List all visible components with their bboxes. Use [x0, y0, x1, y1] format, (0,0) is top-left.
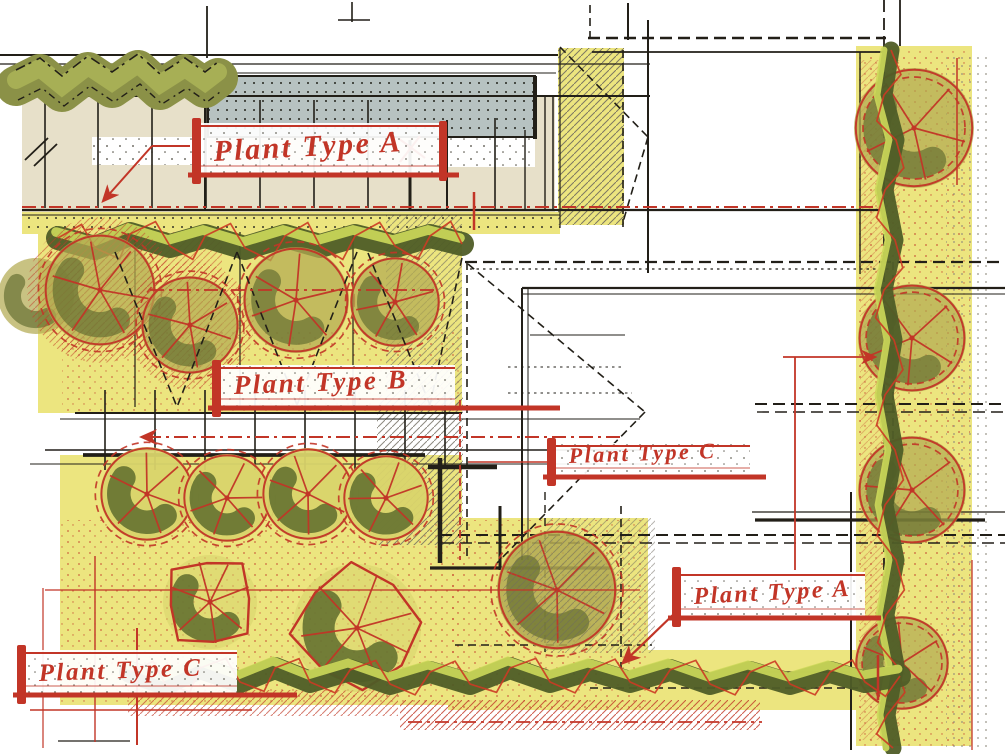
plant-type-label: Plant Type A — [668, 567, 881, 627]
tree-center-dot — [187, 322, 192, 327]
planting-plan-sketch-canvas: Plant Type APlant Type BPlant Type CPlan… — [0, 0, 1005, 754]
tree-center-dot — [144, 491, 149, 496]
tree-center-dot — [97, 287, 102, 292]
tree-symbol-outline — [163, 555, 257, 649]
plant-type-label: Plant Type A — [188, 118, 459, 184]
dotted-strip-texture — [92, 137, 208, 165]
label-left-bar — [212, 360, 221, 417]
tree-spoke — [227, 497, 266, 498]
label-right-bar — [439, 121, 447, 181]
hatch-patch — [558, 48, 624, 225]
tree-center-dot — [207, 599, 212, 604]
plant-type-label: Plant Type C — [543, 438, 766, 486]
sketch-page: Plant Type APlant Type BPlant Type CPlan… — [0, 0, 1005, 754]
plant-type-label: Plant Type B — [208, 360, 560, 417]
hatch-patch — [400, 700, 760, 730]
tree-spoke — [348, 498, 386, 499]
tree-symbol-band — [858, 284, 966, 392]
tree-center-dot — [354, 625, 359, 630]
plant-type-label-text: Plant Type C — [567, 438, 717, 468]
label-left-bar — [17, 645, 26, 704]
tree-spoke — [308, 494, 309, 534]
tree-center-dot — [911, 125, 916, 130]
tree-center-dot — [224, 495, 229, 500]
label-left-bar — [672, 567, 681, 627]
plant-type-label-text: Plant Type C — [37, 654, 203, 687]
tree-center-dot — [293, 297, 298, 302]
tree-center-dot — [392, 299, 397, 304]
tree-spoke — [146, 453, 147, 494]
dotted-strip-texture — [443, 137, 535, 167]
tree-center-dot — [383, 495, 388, 500]
label-left-bar — [192, 118, 201, 184]
tree-symbol-band — [858, 436, 966, 544]
tree-center-dot — [909, 335, 914, 340]
terrace-hedge — [16, 54, 220, 106]
tree-symbol-band — [854, 68, 974, 188]
tree-center-dot — [305, 491, 310, 496]
label-left-bar — [547, 438, 556, 486]
construction-line — [468, 264, 645, 412]
plant-type-label-text: Plant Type B — [232, 364, 408, 400]
tree-center-dot — [909, 487, 914, 492]
